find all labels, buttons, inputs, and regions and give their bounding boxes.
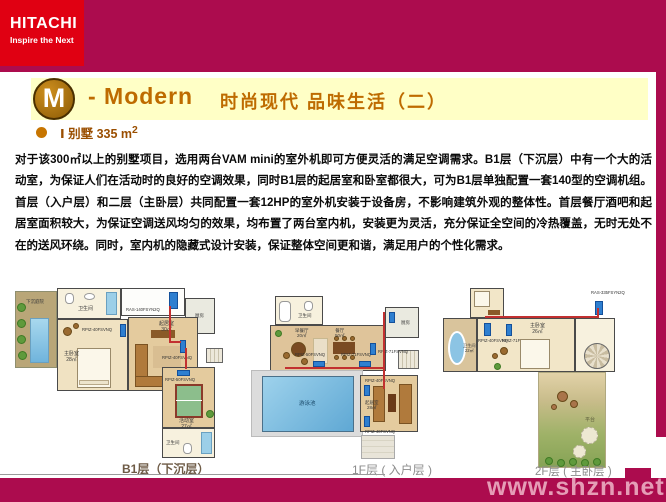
plant-icon [206,410,214,418]
pingpong-table-icon [175,384,203,418]
stair-hall [575,318,615,372]
floor-plan-b1: 下沉庭院 卫生间 RAS-140FSYN2Q 厨房 RPIZ-40FSVNQ 主… [15,288,231,462]
bush-icon [17,319,26,328]
bush-icon [18,351,27,360]
bathroom-bottom: 卫生间 [162,428,215,458]
shrub-icon [581,427,598,444]
chair-icon [73,323,79,329]
shower-icon [106,292,117,315]
indoor-unit-icon [484,323,491,336]
indoor-unit-label: RPIZ-50FSVNQ [165,377,195,382]
room-label: 早餐厅 20㎡ [295,328,309,339]
room-label: 起居室 30㎡ [159,321,174,333]
chair-icon [500,347,508,355]
room-label: 卫生间 22㎡ [463,343,476,353]
room-area: 28㎡ [64,357,79,363]
hitachi-logo-block: HITACHI Inspire the Next [0,0,84,66]
activity-room: RPIZ-50FSVNQ 活动室 27㎡ [162,367,215,428]
bathroom: 卫生间 22㎡ [443,318,477,372]
courtyard-pool [30,318,49,363]
chair-icon [63,327,72,336]
sunken-courtyard: 下沉庭院 [15,291,57,368]
chair-icon [283,352,290,359]
refrigerant-pipe [185,348,187,369]
room-label: 卫生间 [298,313,312,318]
sofa-icon [399,384,412,424]
tree-icon [557,391,568,402]
master-bedroom: RPIZ-40FSVNQ 主卧室 28㎡ [57,319,128,391]
title-chinese: 时尚现代 品味生活（二） [220,88,447,114]
equipment-area: RAS-140FSYN2Q [121,288,185,316]
indoor-unit-label: RPIZ-40FSVNQ [82,327,112,332]
subtitle-text: Ⅰ 别墅 335 m [60,127,132,141]
chair-icon [492,353,498,359]
kitchen-room: 厨房 [385,307,419,338]
room-area: 20㎡ [295,333,309,338]
chair-icon [334,355,339,360]
indoor-unit-icon [120,324,126,337]
bush-icon [17,335,26,344]
footer-divider [0,474,385,475]
indoor-unit-icon [177,370,190,376]
refrigerant-pipe [485,316,599,318]
hitachi-tagline: Inspire the Next [10,35,74,45]
floor-plan-1f: 卫生间 早餐厅 20㎡ 餐厅 50㎡ 厨房 [237,292,445,475]
room-label: 卫生间 [78,306,93,312]
pillow-icon [79,380,109,385]
refrigerant-pipe [169,306,171,342]
slide: HITACHI Inspire the Next M - Modern 时尚现代… [0,0,666,502]
toilet-icon [183,443,192,454]
toilet-icon [65,293,74,304]
body-paragraph: 对于该300㎡以上的别墅项目，选用两台VAM mini的室外机即可方便灵活的满足… [15,150,652,257]
garden-label: 下沉庭院 [26,299,44,304]
small-bedroom [470,288,504,318]
entry-porch [361,435,395,459]
indoor-unit-icon [506,324,512,336]
caption-1f: 1F层 ( 入户层 ) [352,461,432,478]
plant-icon [275,330,282,337]
terrace: 平台 [538,372,606,468]
indoor-unit-icon [364,385,370,396]
room-area: 50㎡ [335,333,345,338]
indoor-unit-icon [364,416,370,427]
bed-icon [474,291,490,307]
bullet-icon [36,127,47,138]
header-band [0,0,666,72]
room-label: 主卧室 28㎡ [64,351,79,363]
hitachi-logo: HITACHI [10,15,77,33]
bed-icon [520,339,550,369]
plant-icon [494,363,501,370]
sink-icon [84,293,95,300]
refrigerant-pipe [383,367,385,389]
outdoor-unit-label: RAS-140FSYN2Q [126,307,160,312]
bathroom-top: 卫生间 [57,288,121,319]
indoor-unit-label: RPIZ-40FSVNQ [162,355,192,360]
indoor-unit-label: RPIZ-71FSVNQ [341,352,371,357]
refrigerant-pipe [169,341,181,343]
room-label: 餐厅 50㎡ [335,328,345,339]
sofa-icon [135,344,148,378]
refrigerant-pipe [285,367,385,369]
indoor-unit-icon [370,343,376,355]
subtitle: Ⅰ 别墅 335 m2 [60,123,138,142]
tree-icon [570,400,578,408]
shower-icon [201,432,212,454]
refrigerant-pipe [383,312,385,368]
room-area: 26㎡ [530,329,545,335]
spiral-stairs-icon [584,343,610,369]
room-label: 厨房 [401,320,410,325]
swimming-pool: 游泳池 [262,376,354,432]
tree-icon [551,404,557,410]
m-badge-icon: M [33,78,75,120]
indoor-unit-label: RPIZ-50FSVNQ [295,352,325,357]
refrigerant-pipe [597,308,599,316]
indoor-unit-label: RPIZ-40FSVNQ [365,378,395,383]
title-english: - Modern [88,83,193,110]
pool-label: 游泳池 [299,401,316,408]
terrace-label: 平台 [585,417,595,423]
subtitle-sup: 2 [132,125,138,136]
indoor-unit-icon [389,312,395,323]
room-area: 22㎡ [463,348,476,353]
bathroom: 卫生间 [275,296,323,325]
coffee-table-icon [388,394,396,412]
indoor-unit-label: RPIZ-40FSVNQ [365,429,395,434]
bush-icon [17,303,26,312]
room-area: 28㎡ [365,405,379,410]
room-area: 30㎡ [159,327,174,333]
chair-icon [350,336,355,341]
bathtub-icon [279,301,291,322]
floor-plan-2f: 卫生间 22㎡ RPIZ-40FSVNQ RPIZ-71FSVNQ 主卧室 26… [443,288,655,478]
sofa-icon [135,376,165,387]
dresser-icon [488,310,500,315]
master-bedroom: RPIZ-40FSVNQ RPIZ-71FSVNQ 主卧室 26㎡ [477,318,575,372]
toilet-icon [304,301,313,311]
stairs-icon [206,348,223,363]
outdoor-unit-label: RAS-335FSYN2Q [591,290,625,295]
right-edge-stripe [656,0,666,437]
room-label: 主卧室 26㎡ [530,323,545,335]
pingpong-net-icon [176,400,202,401]
shrub-icon [573,445,586,458]
chair-icon [301,358,308,365]
room-label: 起居室 28㎡ [365,400,379,411]
watermark: www.shzn.net [487,473,665,502]
room-label: 卫生间 [166,440,180,445]
